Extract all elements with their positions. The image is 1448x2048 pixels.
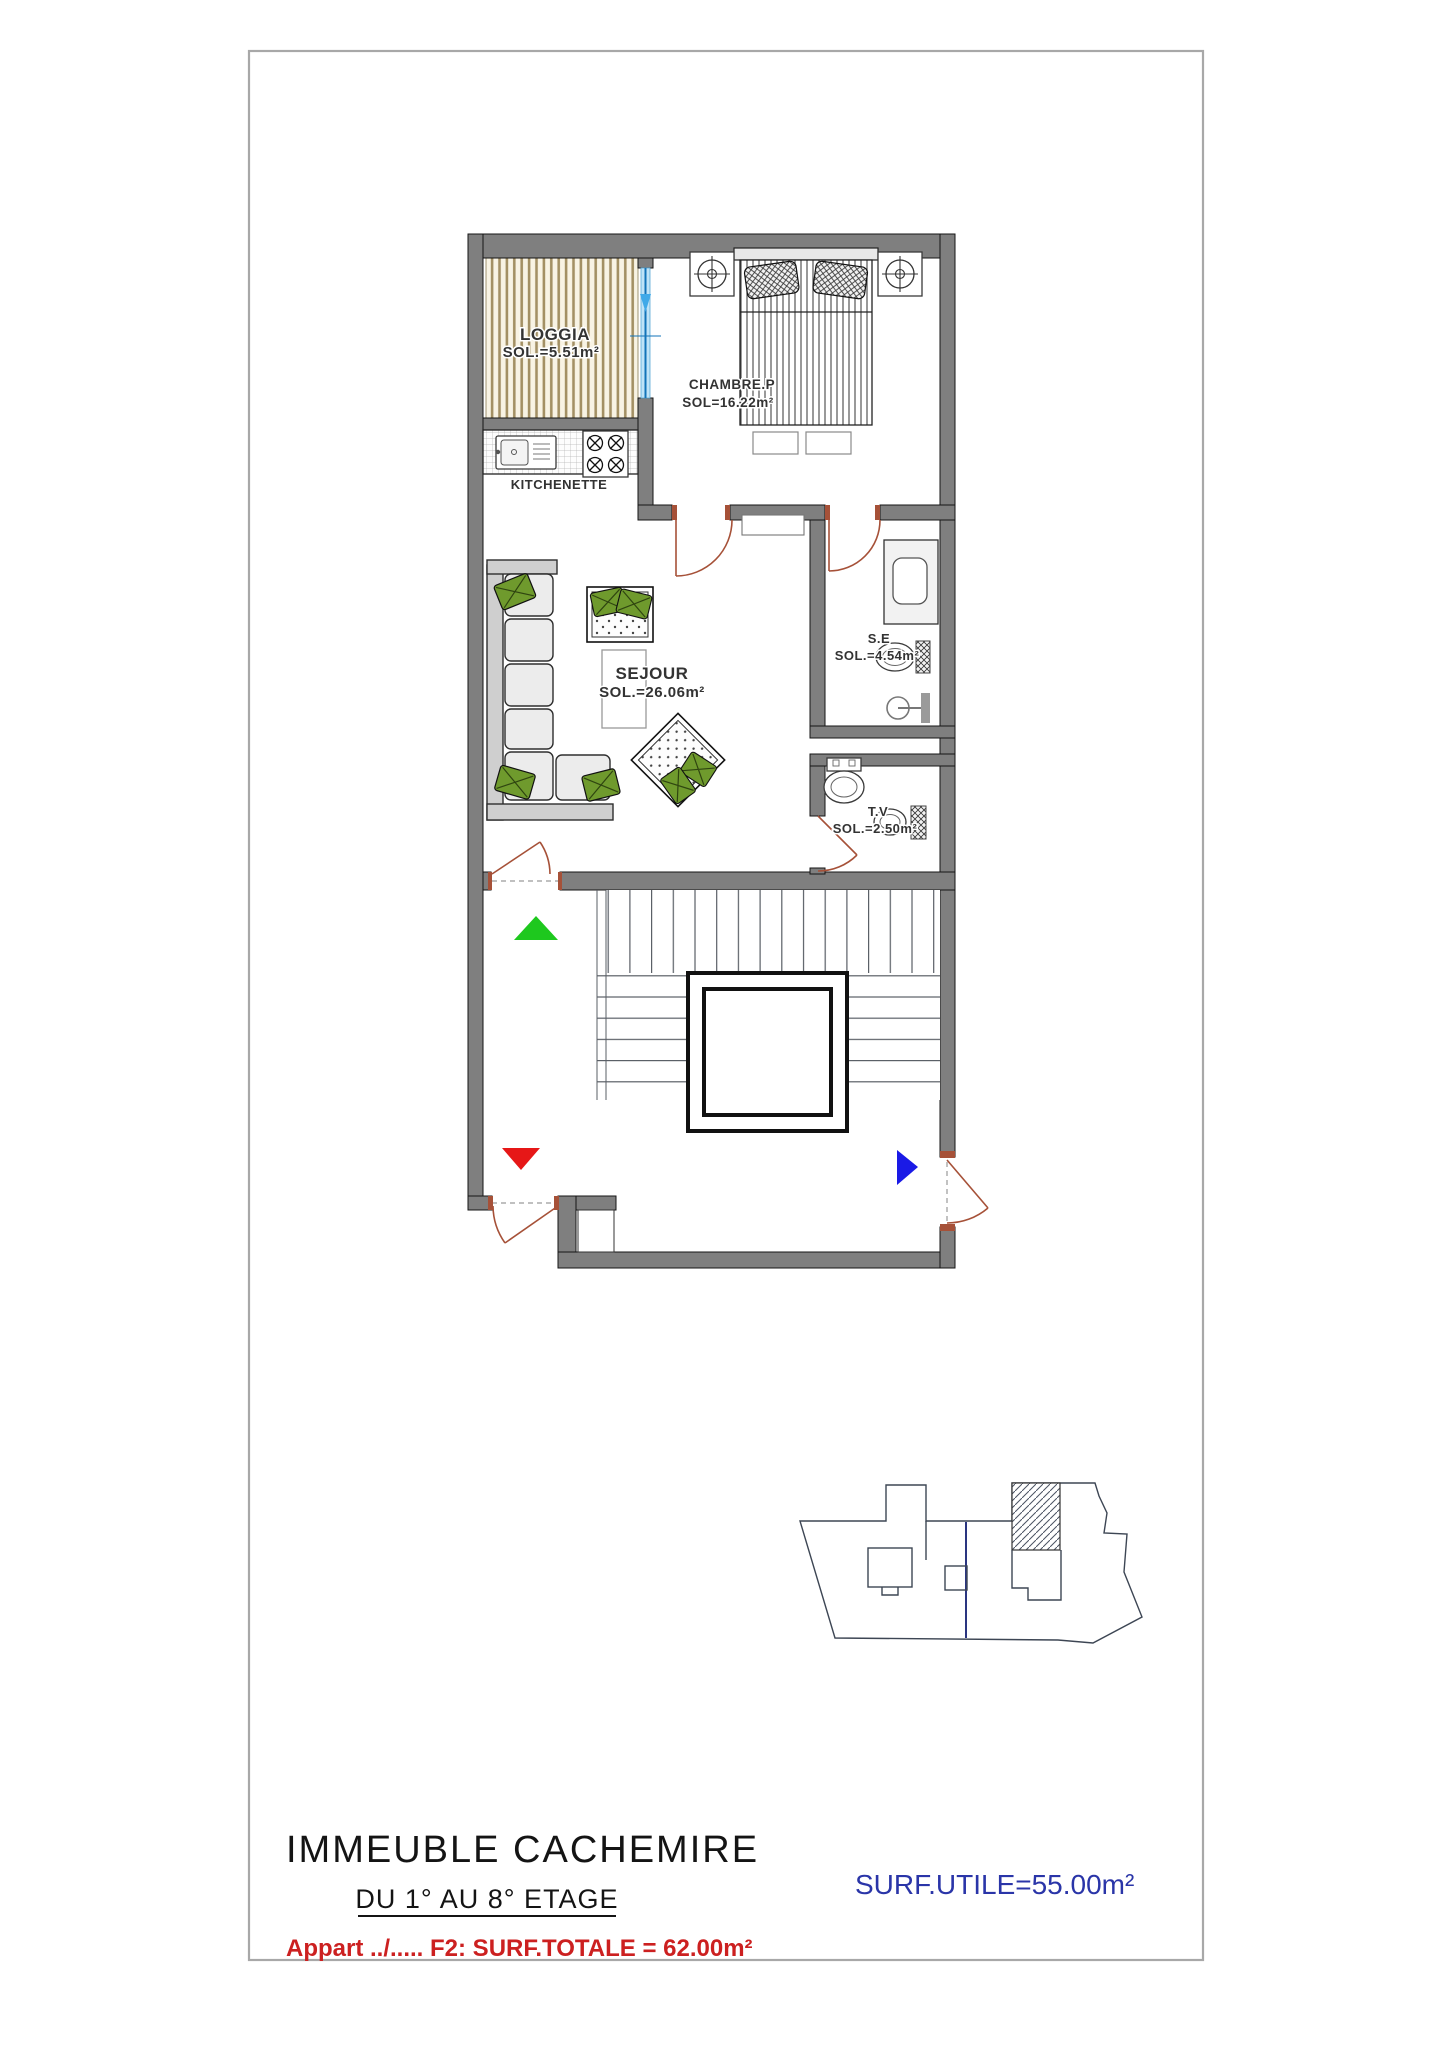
floorplan-canvas: LOGGIA SOL.=5.51m² KITCHENETTE CHAMBRE.P… <box>0 0 1448 2048</box>
room-area-chambre: SOL=16.22m² <box>682 395 773 410</box>
nightstand-left <box>690 252 734 296</box>
pillow <box>744 261 800 300</box>
bed <box>734 248 878 454</box>
room-label-se: S.E <box>868 631 890 646</box>
room-area-se: SOL.=4.54m² <box>835 648 920 663</box>
room-label-kitchenette: KITCHENETTE <box>511 477 608 492</box>
toilet-icon <box>824 758 864 803</box>
site-core-notch <box>882 1587 898 1595</box>
shower-mixer-icon <box>887 693 930 723</box>
bed-bench <box>806 432 851 454</box>
door-exterior-left <box>493 1206 558 1243</box>
kitchenette-counter <box>483 430 638 477</box>
room-area-sejour: SOL.=26.06m² <box>599 684 705 701</box>
surface-utile: SURF.UTILE=55.00m² <box>855 1869 1134 1900</box>
room-area-loggia: SOL.=5.51m² <box>503 344 600 361</box>
nightstand-right <box>878 252 922 296</box>
door-exterior-right <box>947 1160 988 1223</box>
bed-bench <box>753 432 798 454</box>
shower-icon <box>884 540 938 624</box>
site-apartment-outline <box>1012 1550 1061 1600</box>
apartment-location-hatch <box>1012 1483 1060 1550</box>
wardrobe <box>742 515 804 535</box>
sink-icon <box>496 436 556 469</box>
stairs-up-marker <box>514 916 558 940</box>
room-label-chambre: CHAMBRE.P <box>689 377 775 392</box>
site-key-plan <box>800 1483 1142 1643</box>
stairs-down-marker <box>502 1148 540 1170</box>
building-outline <box>800 1483 1142 1643</box>
sheet-floor-range: DU 1° AU 8° ETAGE <box>355 1884 618 1914</box>
elevator <box>688 973 847 1131</box>
apartment-note: Appart ../..... F2: SURF.TOTALE = 62.00m… <box>286 1935 753 1962</box>
site-core-mid <box>945 1566 967 1590</box>
duct-niche <box>578 1210 614 1252</box>
drawing-sheet: LOGGIA SOL.=5.51m² KITCHENETTE CHAMBRE.P… <box>0 0 1448 2048</box>
room-area-tv: SOL.=2.50m² <box>833 821 918 836</box>
floor-plan: LOGGIA SOL.=5.51m² KITCHENETTE CHAMBRE.P… <box>468 234 988 1268</box>
entry-direction-marker <box>897 1150 918 1185</box>
sheet-title: IMMEUBLE CACHEMIRE <box>286 1829 759 1871</box>
room-label-sejour: SEJOUR <box>616 664 689 683</box>
room-label-tv: T.V <box>868 804 888 819</box>
site-core-left <box>868 1548 912 1587</box>
bed-headboard <box>734 248 878 260</box>
pillow <box>812 261 868 300</box>
armchair-top <box>587 587 653 642</box>
room-label-loggia: LOGGIA <box>520 325 590 344</box>
stove-icon <box>583 431 628 477</box>
door-apartment-entry <box>492 842 550 874</box>
door-bedroom <box>676 520 732 576</box>
door-salle-eau <box>829 520 880 571</box>
